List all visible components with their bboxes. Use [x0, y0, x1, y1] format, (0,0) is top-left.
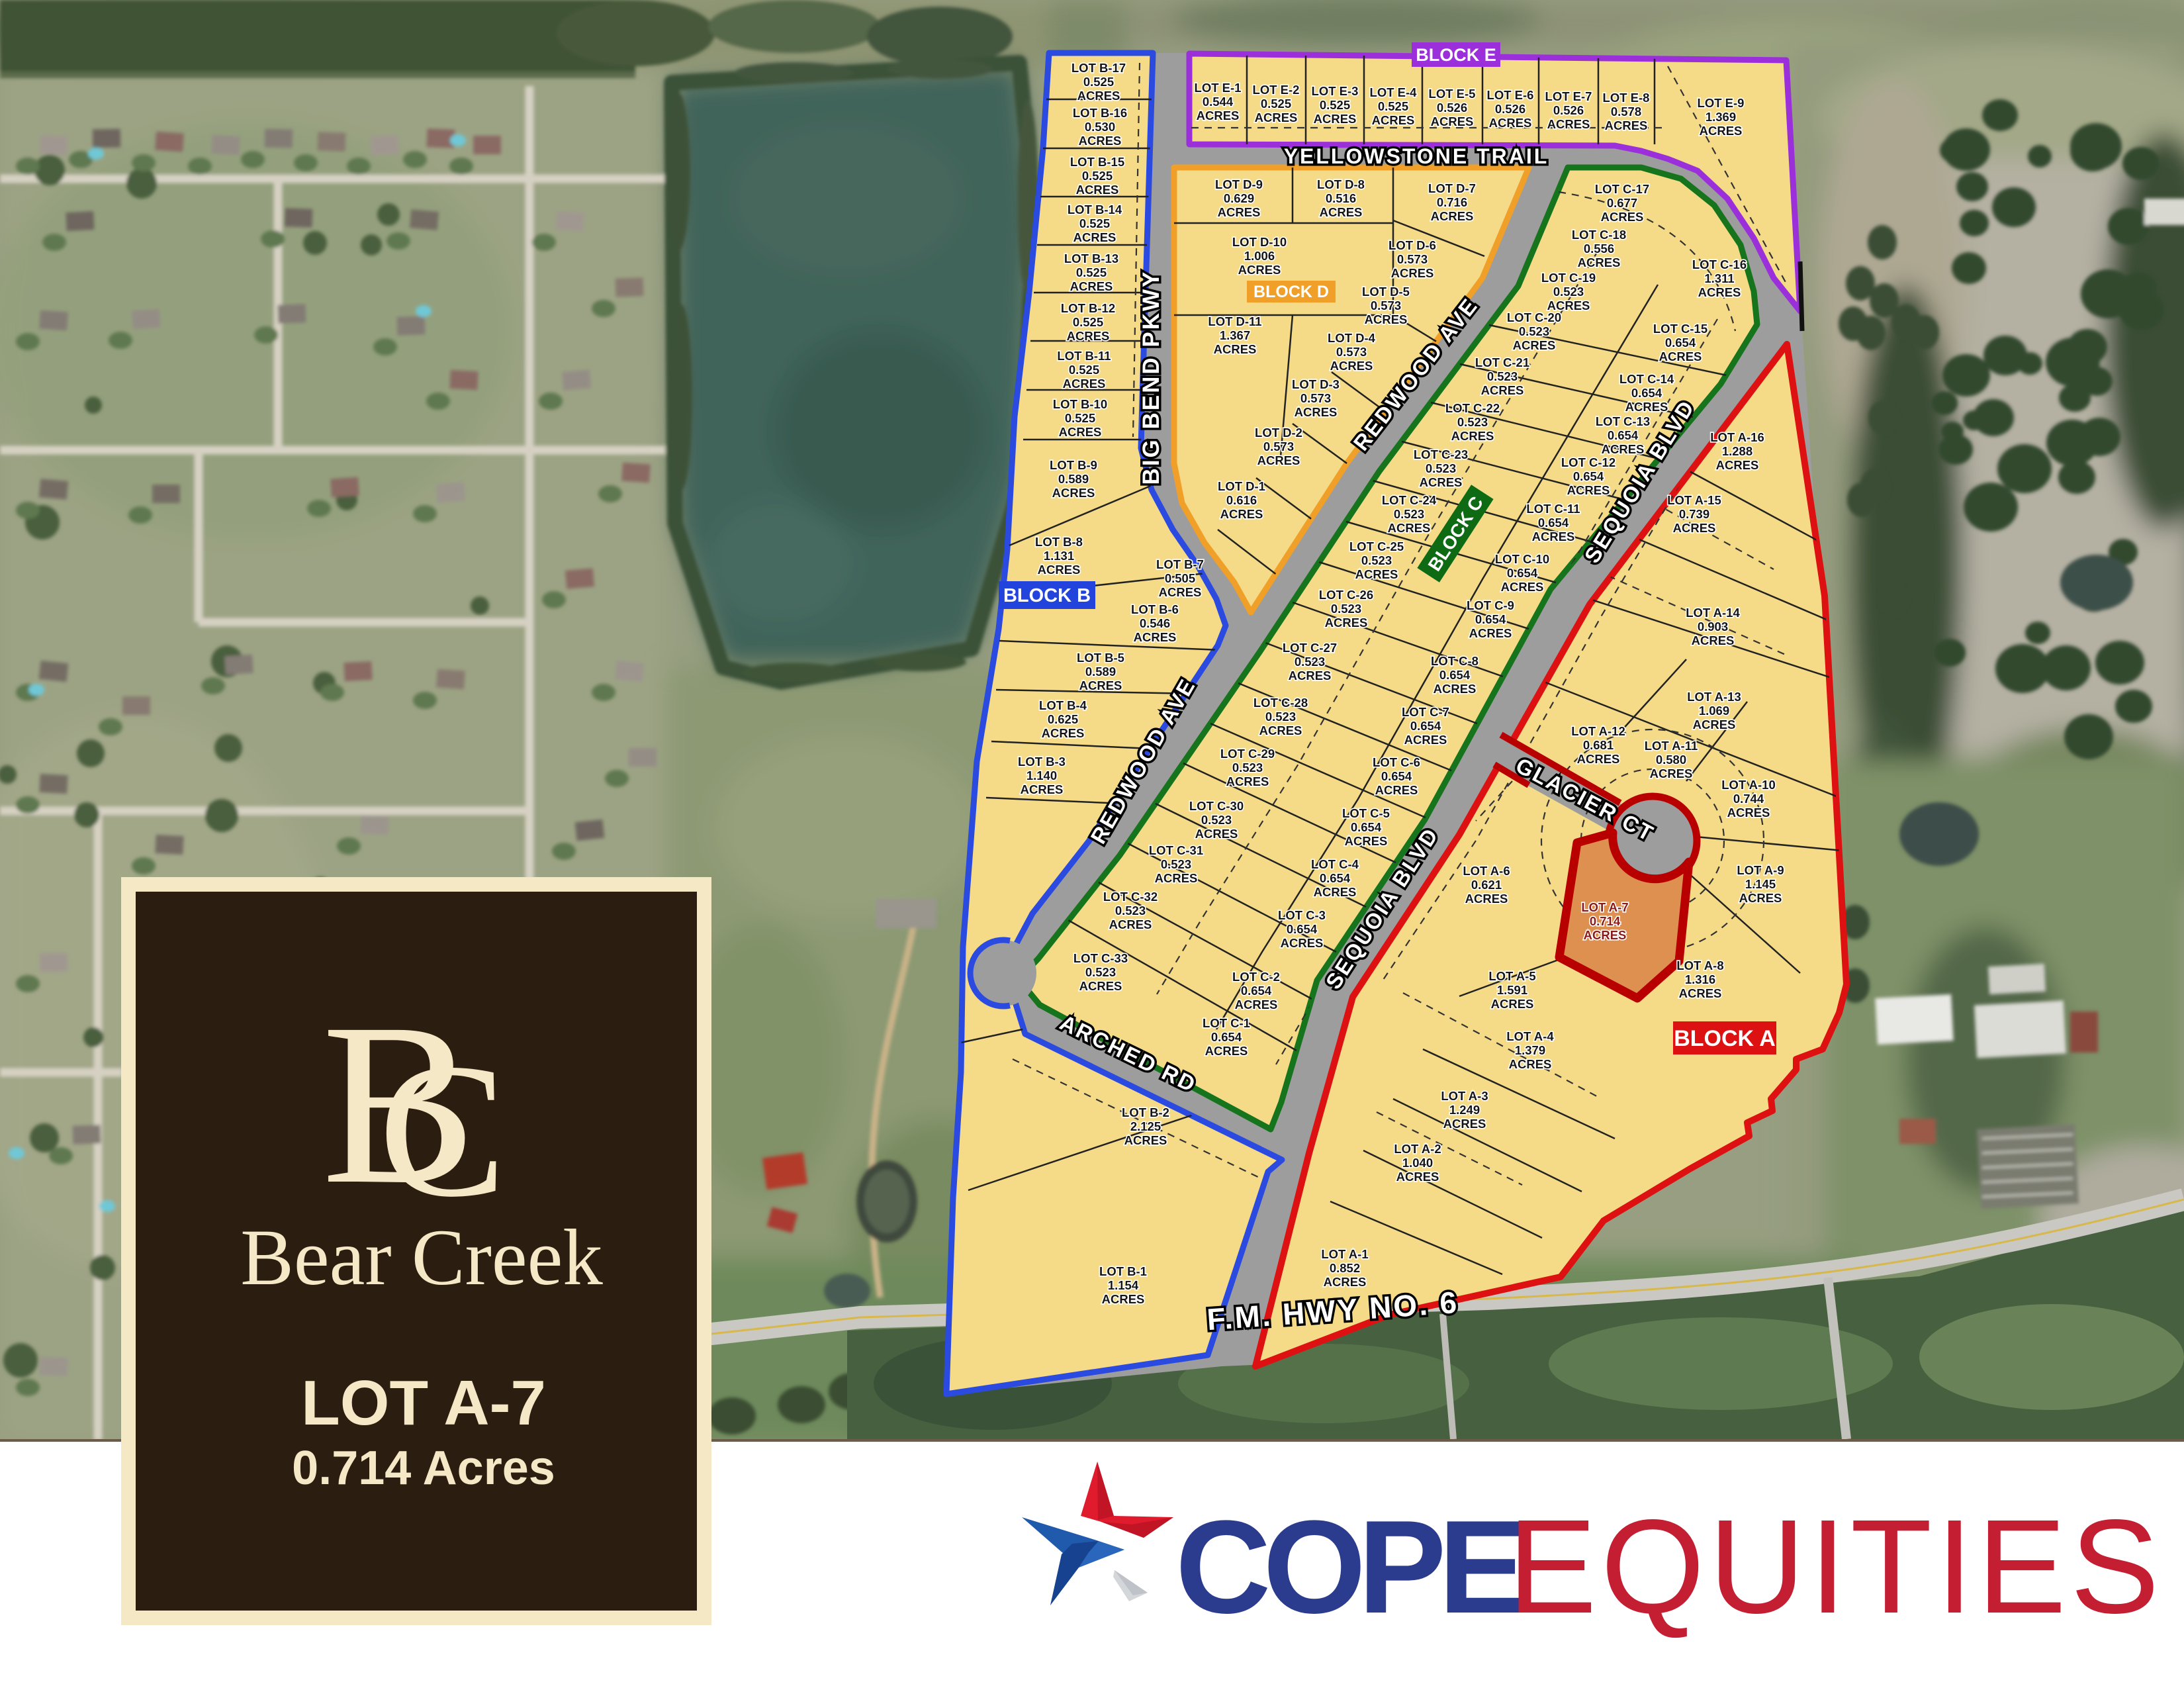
svg-text:EQUITIES: EQUITIES: [1508, 1491, 2163, 1641]
svg-text:BLOCK A: BLOCK A: [1674, 1026, 1776, 1051]
svg-text:YELLOWSTONE TRAIL: YELLOWSTONE TRAIL: [1284, 144, 1549, 168]
svg-text:BIG BEND PKWY: BIG BEND PKWY: [1138, 270, 1164, 485]
svg-text:BLOCK B: BLOCK B: [1003, 585, 1091, 606]
svg-text:LOT A-7: LOT A-7: [301, 1368, 546, 1438]
svg-text:COPE: COPE: [1175, 1493, 1522, 1641]
svg-text:BLOCK D: BLOCK D: [1253, 283, 1329, 301]
svg-text:0.714 Acres: 0.714 Acres: [292, 1442, 555, 1495]
svg-text:Bear Creek: Bear Creek: [240, 1213, 603, 1302]
svg-text:C: C: [379, 1024, 506, 1237]
svg-text:BLOCK E: BLOCK E: [1416, 45, 1496, 65]
